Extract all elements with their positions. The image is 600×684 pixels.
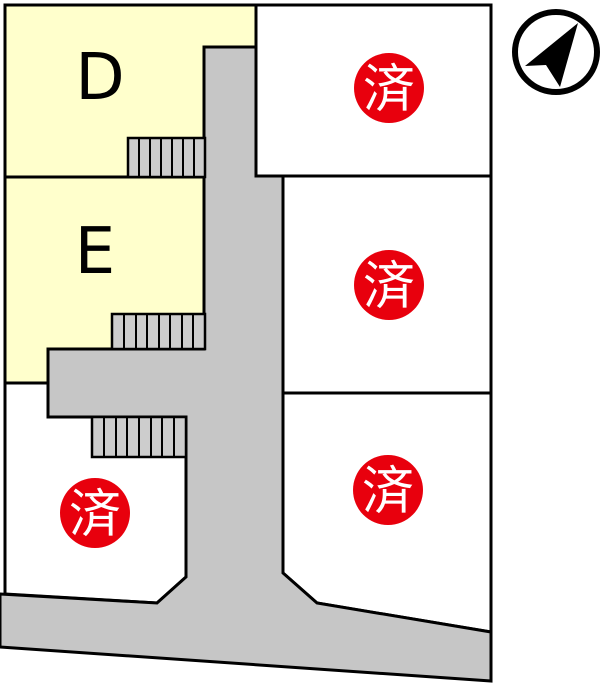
sold-badge-east-text: 済 — [363, 257, 415, 317]
lot-e-label: E — [75, 215, 115, 289]
stairs-lot-e — [112, 314, 205, 349]
sold-badge-southeast-text: 済 — [362, 462, 414, 522]
lot-map: D E 済 済 済 済 — [0, 0, 600, 684]
sold-badge-southwest-text: 済 — [69, 485, 121, 545]
sold-badge-southwest: 済 — [60, 478, 130, 548]
sold-badge-northeast-text: 済 — [363, 60, 415, 120]
sold-badge-southeast: 済 — [353, 455, 423, 525]
stairs-lot-d — [128, 138, 205, 177]
sold-badge-east: 済 — [354, 250, 424, 320]
lot-d-label: D — [75, 41, 124, 115]
stairs-lot-southwest — [92, 417, 186, 457]
north-arrow-icon — [515, 12, 597, 92]
sold-badge-northeast: 済 — [354, 53, 424, 123]
